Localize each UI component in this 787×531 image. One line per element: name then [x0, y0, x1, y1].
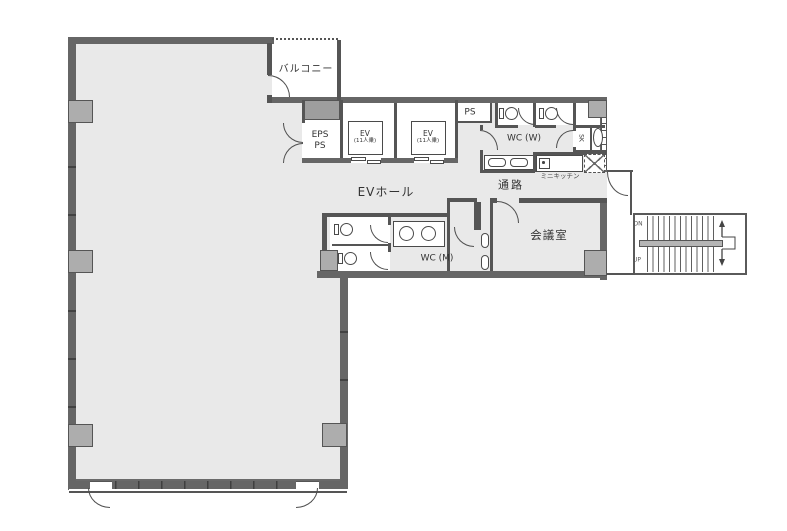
wall — [535, 125, 556, 128]
wall — [455, 100, 458, 162]
wall — [519, 198, 607, 203]
label-stair-down: DN — [633, 220, 642, 227]
wall — [573, 128, 576, 131]
toilet-icon — [539, 106, 559, 121]
wall — [394, 103, 397, 162]
sink-basin — [399, 226, 414, 241]
wall — [322, 213, 450, 217]
label-wc-w: WC (W) — [507, 134, 541, 145]
wall — [270, 97, 304, 103]
wall — [630, 170, 632, 215]
pillar — [68, 250, 93, 273]
label-ps: PS — [464, 108, 475, 119]
label-meeting-room: 会議室 — [530, 229, 568, 243]
urinal-icon — [481, 233, 489, 248]
sink-basin — [421, 226, 436, 241]
label-elevator-1: EV (11人乗) — [354, 129, 376, 145]
label-stair-up: UP — [633, 256, 641, 263]
main-room-floor — [75, 43, 340, 484]
sink-basin — [510, 158, 528, 167]
label-wc-m: WC (M) — [421, 254, 454, 265]
wall — [322, 213, 327, 254]
wall — [495, 103, 498, 127]
window-mullions — [340, 285, 348, 420]
stair-direction-arrows — [714, 217, 744, 269]
label-elevator-2: EV (11人乗) — [417, 129, 439, 145]
toilet-icon — [338, 251, 358, 266]
wall — [495, 125, 518, 128]
label-corridor: 通路 — [498, 178, 524, 191]
pillar — [304, 100, 340, 120]
floor-plan: バルコニー EPS PS EV (11人乗) EV (11人乗) PS WC (… — [0, 0, 787, 531]
wall — [388, 217, 391, 225]
stair-center-rail — [639, 240, 723, 247]
wall — [480, 150, 483, 172]
label-balcony: バルコニー — [279, 64, 334, 76]
wall — [480, 170, 535, 173]
door-arc-stairwell — [607, 172, 628, 196]
wall — [332, 244, 388, 246]
wall — [474, 202, 481, 230]
pillar — [320, 250, 338, 271]
toilet-icon — [499, 106, 519, 121]
pillar — [68, 424, 93, 447]
toilet-icon — [334, 222, 354, 237]
wall — [458, 121, 492, 123]
wall — [68, 37, 274, 44]
label-eps-line1: EPS — [312, 130, 329, 141]
label-mini-kitchen: ミニキッチン — [541, 173, 580, 181]
window-mullions — [115, 481, 285, 489]
wall — [590, 125, 592, 150]
wall — [607, 273, 635, 275]
wall — [388, 243, 391, 252]
sink-basin — [488, 158, 506, 167]
slop-sink-icon — [593, 128, 603, 147]
label-ev-hall: EVホール — [358, 185, 415, 199]
pillar — [588, 100, 607, 118]
elevator-door-leaf — [430, 160, 444, 164]
label-ev-line1: EV — [354, 129, 376, 138]
wall — [490, 198, 493, 271]
wall — [490, 103, 492, 123]
wall — [337, 40, 341, 100]
wall — [573, 103, 576, 127]
wall — [317, 271, 607, 278]
pillar — [584, 250, 607, 276]
wall — [340, 100, 343, 162]
kitchen-sink — [539, 158, 550, 169]
wall — [447, 198, 477, 202]
label-eps-ps: EPS PS — [312, 130, 329, 152]
label-ev-line1: EV — [417, 129, 439, 138]
wall — [267, 43, 272, 75]
elevator-door-leaf — [367, 160, 381, 164]
urinal-icon — [481, 255, 489, 270]
pillar — [322, 423, 347, 447]
door-arc-exit — [296, 488, 318, 508]
balcony-boundary-dotted — [272, 38, 338, 43]
label-sk: SK — [577, 134, 584, 142]
label-ev-line2: (11人乗) — [417, 138, 439, 145]
pillar — [68, 100, 93, 123]
label-eps-line2: PS — [312, 141, 329, 152]
duct-shaft — [584, 154, 605, 173]
label-ev-line2: (11人乗) — [354, 138, 376, 145]
elevator-door-leaf — [351, 157, 366, 161]
elevator-door-leaf — [414, 157, 429, 161]
wall — [573, 125, 605, 128]
door-arc-exit — [88, 488, 110, 508]
